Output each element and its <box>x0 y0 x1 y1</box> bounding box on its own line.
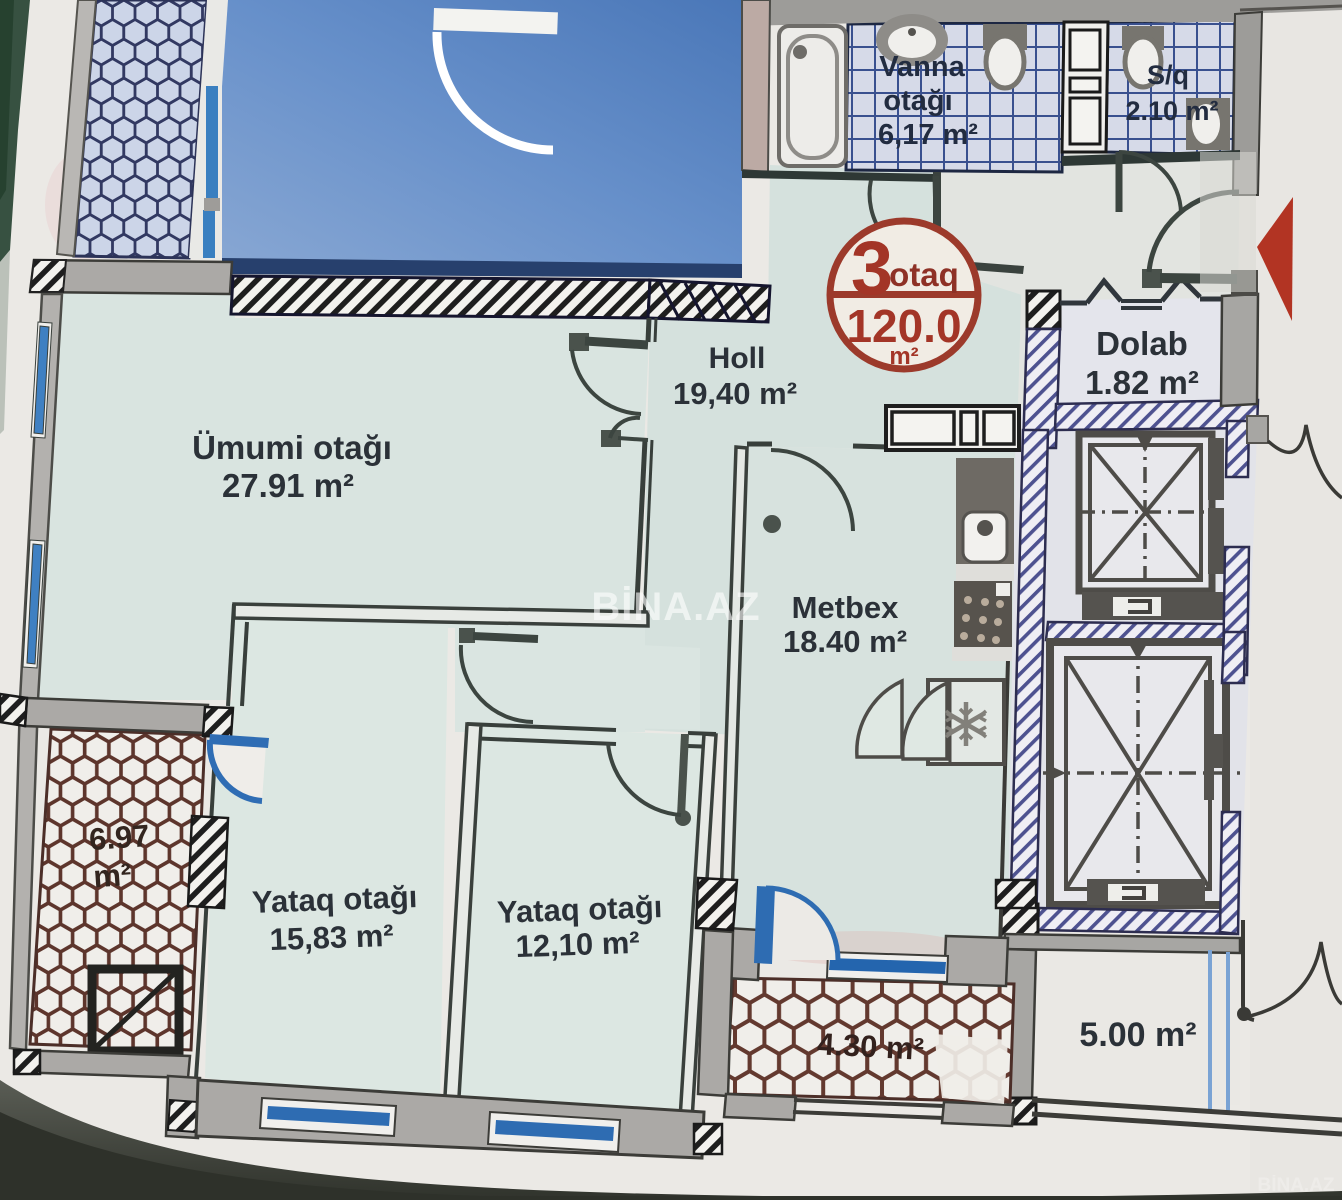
svg-text:27.91 m²: 27.91 m² <box>222 467 354 504</box>
svg-text:S/q: S/q <box>1147 60 1189 90</box>
svg-text:12,10 m²: 12,10 m² <box>515 925 640 964</box>
svg-text:otaq: otaq <box>889 256 959 293</box>
svg-text:m²: m² <box>889 343 918 370</box>
svg-text:15,83 m²: 15,83 m² <box>269 918 394 957</box>
svg-text:otağı: otağı <box>883 85 952 117</box>
svg-text:BİNA.AZ: BİNA.AZ <box>1257 1175 1334 1196</box>
svg-text:19,40 m²: 19,40 m² <box>673 376 797 411</box>
svg-text:4.30 m²: 4.30 m² <box>816 1026 925 1067</box>
svg-text:18.40 m²: 18.40 m² <box>783 624 907 659</box>
svg-text:Yataq otağı: Yataq otağı <box>251 879 417 920</box>
svg-text:Metbex: Metbex <box>792 590 900 625</box>
svg-text:5.00 m²: 5.00 m² <box>1079 1016 1196 1054</box>
svg-text:Vanna: Vanna <box>879 51 965 83</box>
svg-text:Ümumi otağı: Ümumi otağı <box>192 429 392 466</box>
svg-text:6,17 m²: 6,17 m² <box>878 119 978 151</box>
svg-text:6.97: 6.97 <box>88 818 151 857</box>
svg-text:BİNA.AZ: BİNA.AZ <box>591 585 760 629</box>
svg-text:Yataq otağı: Yataq otağı <box>496 889 662 930</box>
svg-text:m²: m² <box>92 857 132 895</box>
svg-text:2.10 m²: 2.10 m² <box>1125 96 1218 126</box>
svg-text:Dolab: Dolab <box>1096 325 1188 362</box>
svg-text:1.82 m²: 1.82 m² <box>1085 364 1199 401</box>
svg-text:Holl: Holl <box>709 342 766 375</box>
svg-text:3: 3 <box>851 226 893 311</box>
